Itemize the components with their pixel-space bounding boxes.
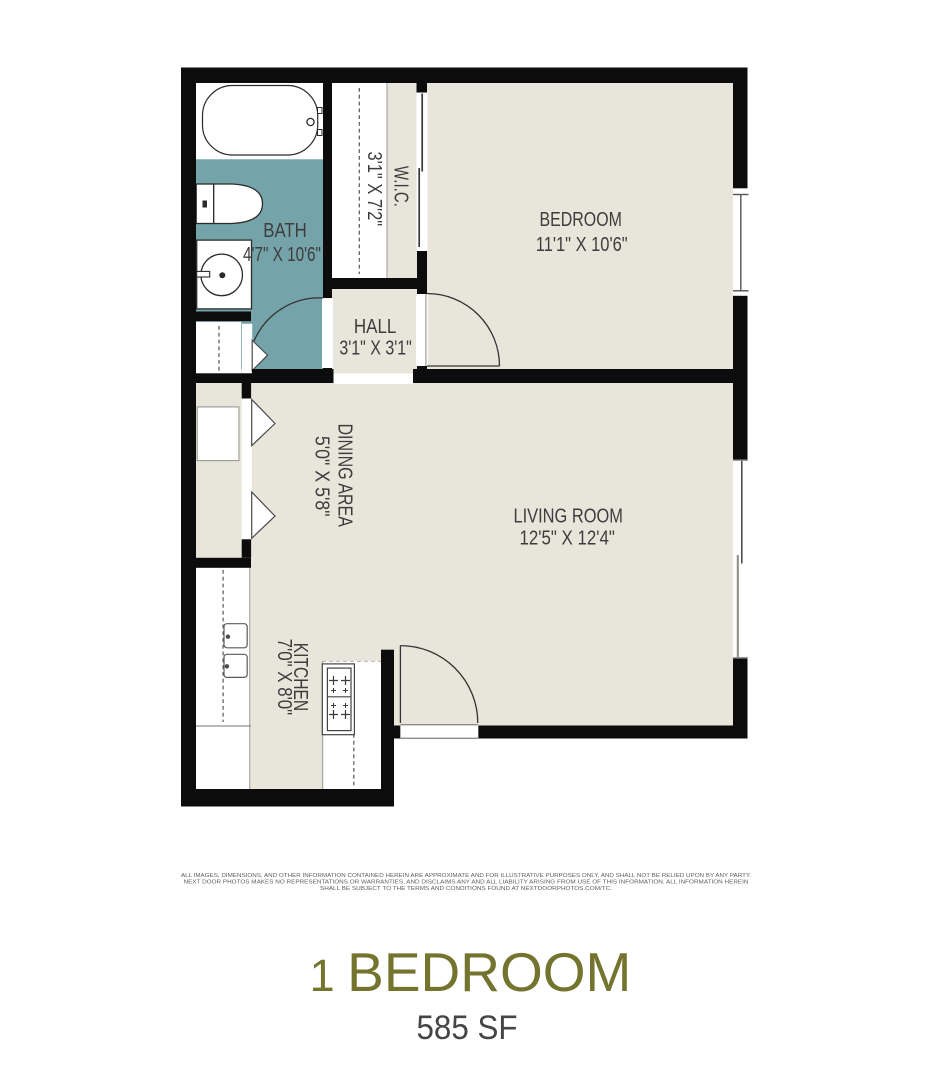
svg-text:12'5" X 12'4": 12'5" X 12'4" [519,528,615,550]
svg-text:7'0" X 8'0": 7'0" X 8'0" [273,639,295,716]
svg-text:1 BEDROOM: 1 BEDROOM [310,941,632,1003]
svg-text:LIVING ROOM: LIVING ROOM [513,506,623,528]
svg-text:HALL: HALL [354,316,396,338]
svg-text:SHALL BE SUBJECT TO THE TERMS: SHALL BE SUBJECT TO THE TERMS AND CONDIT… [320,886,612,892]
svg-text:585 SF: 585 SF [417,1009,518,1047]
svg-text:3'1" X 7'2": 3'1" X 7'2" [363,152,385,227]
svg-text:BATH: BATH [263,220,307,242]
svg-text:BEDROOM: BEDROOM [540,209,622,231]
svg-text:DINING AREA: DINING AREA [333,423,355,527]
svg-text:11'1" X 10'6": 11'1" X 10'6" [536,234,628,256]
svg-text:ALL IMAGES, DIMENSIONS, AND OT: ALL IMAGES, DIMENSIONS, AND OTHER INFORM… [181,873,751,879]
svg-text:4'7" X 10'6": 4'7" X 10'6" [243,244,321,266]
svg-text:3'1" X 3'1": 3'1" X 3'1" [339,338,412,360]
svg-text:W.I.C.: W.I.C. [389,166,411,207]
svg-text:NEXT DOOR PHOTOS MAKES NO REPR: NEXT DOOR PHOTOS MAKES NO REPRESENTATION… [184,879,749,885]
svg-text:5'0" X 5'8": 5'0" X 5'8" [310,436,332,517]
